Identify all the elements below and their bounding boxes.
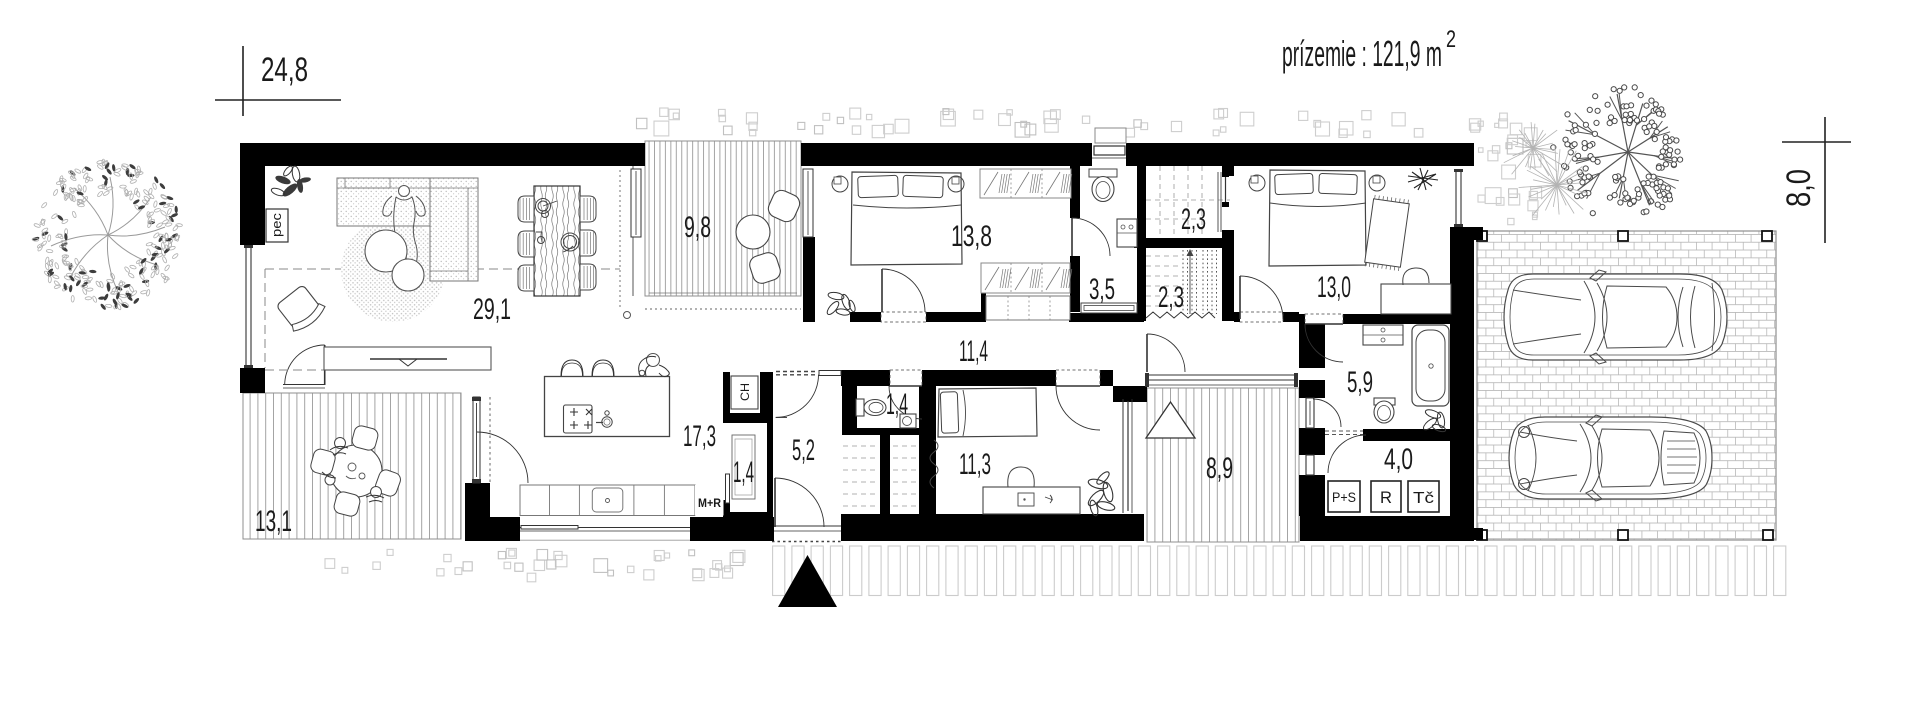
svg-text:11,4: 11,4 [959, 335, 988, 368]
svg-text:5,2: 5,2 [792, 434, 815, 467]
svg-text:prízemie : 121,9 m: prízemie : 121,9 m [1282, 33, 1442, 74]
svg-text:P+S: P+S [1332, 489, 1356, 505]
svg-text:8,9: 8,9 [1206, 452, 1233, 485]
svg-text:4,0: 4,0 [1384, 443, 1413, 476]
svg-text:29,1: 29,1 [473, 293, 511, 326]
svg-text:R: R [1380, 488, 1392, 507]
svg-text:1,4: 1,4 [733, 456, 754, 489]
svg-text:9,8: 9,8 [684, 211, 711, 244]
svg-text:24,8: 24,8 [261, 51, 308, 89]
svg-text:M+R: M+R [698, 498, 722, 510]
svg-text:17,3: 17,3 [683, 420, 716, 453]
svg-text:2,3: 2,3 [1181, 203, 1206, 236]
svg-text:13,0: 13,0 [1317, 271, 1351, 304]
svg-text:13,8: 13,8 [951, 220, 992, 253]
svg-text:5,9: 5,9 [1347, 366, 1373, 399]
svg-text:11,3: 11,3 [959, 448, 991, 481]
svg-text:Tč: Tč [1413, 490, 1434, 507]
svg-text:3,5: 3,5 [1089, 273, 1115, 306]
svg-text:13,1: 13,1 [255, 505, 292, 538]
svg-text:1,4: 1,4 [886, 388, 908, 421]
svg-text:2,3: 2,3 [1158, 281, 1184, 314]
svg-text:CH: CH [738, 383, 752, 401]
svg-text:8,0: 8,0 [1780, 169, 1818, 207]
svg-text:2: 2 [1446, 26, 1456, 53]
svg-text:pec: pec [269, 212, 284, 237]
